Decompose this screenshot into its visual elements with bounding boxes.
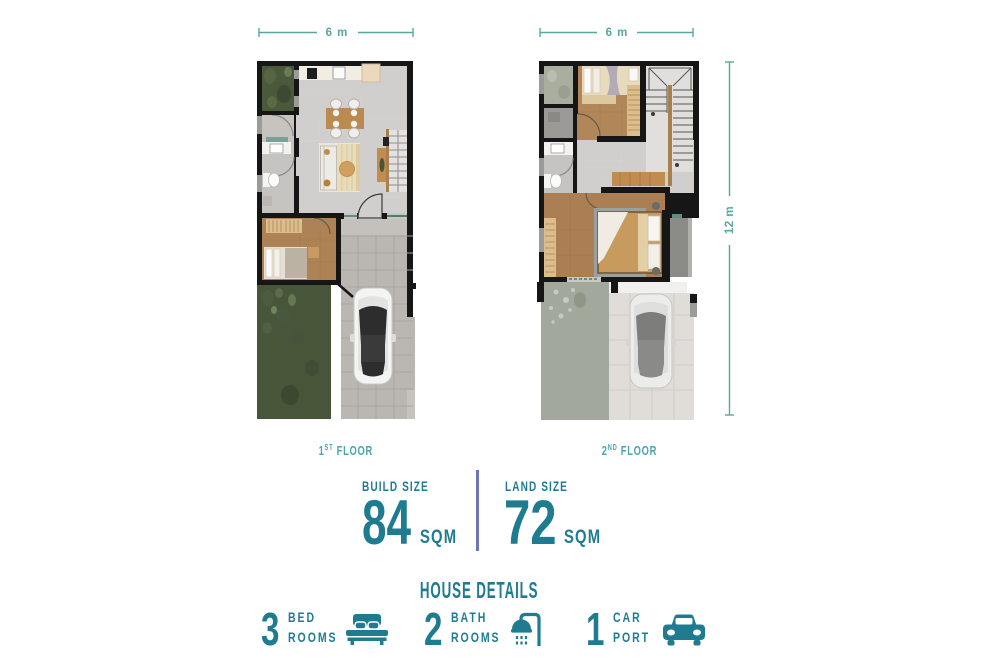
- svg-text:6 m: 6 m: [606, 27, 629, 39]
- svg-text:6 m: 6 m: [326, 27, 349, 39]
- svg-text:12 m: 12 m: [724, 206, 736, 234]
